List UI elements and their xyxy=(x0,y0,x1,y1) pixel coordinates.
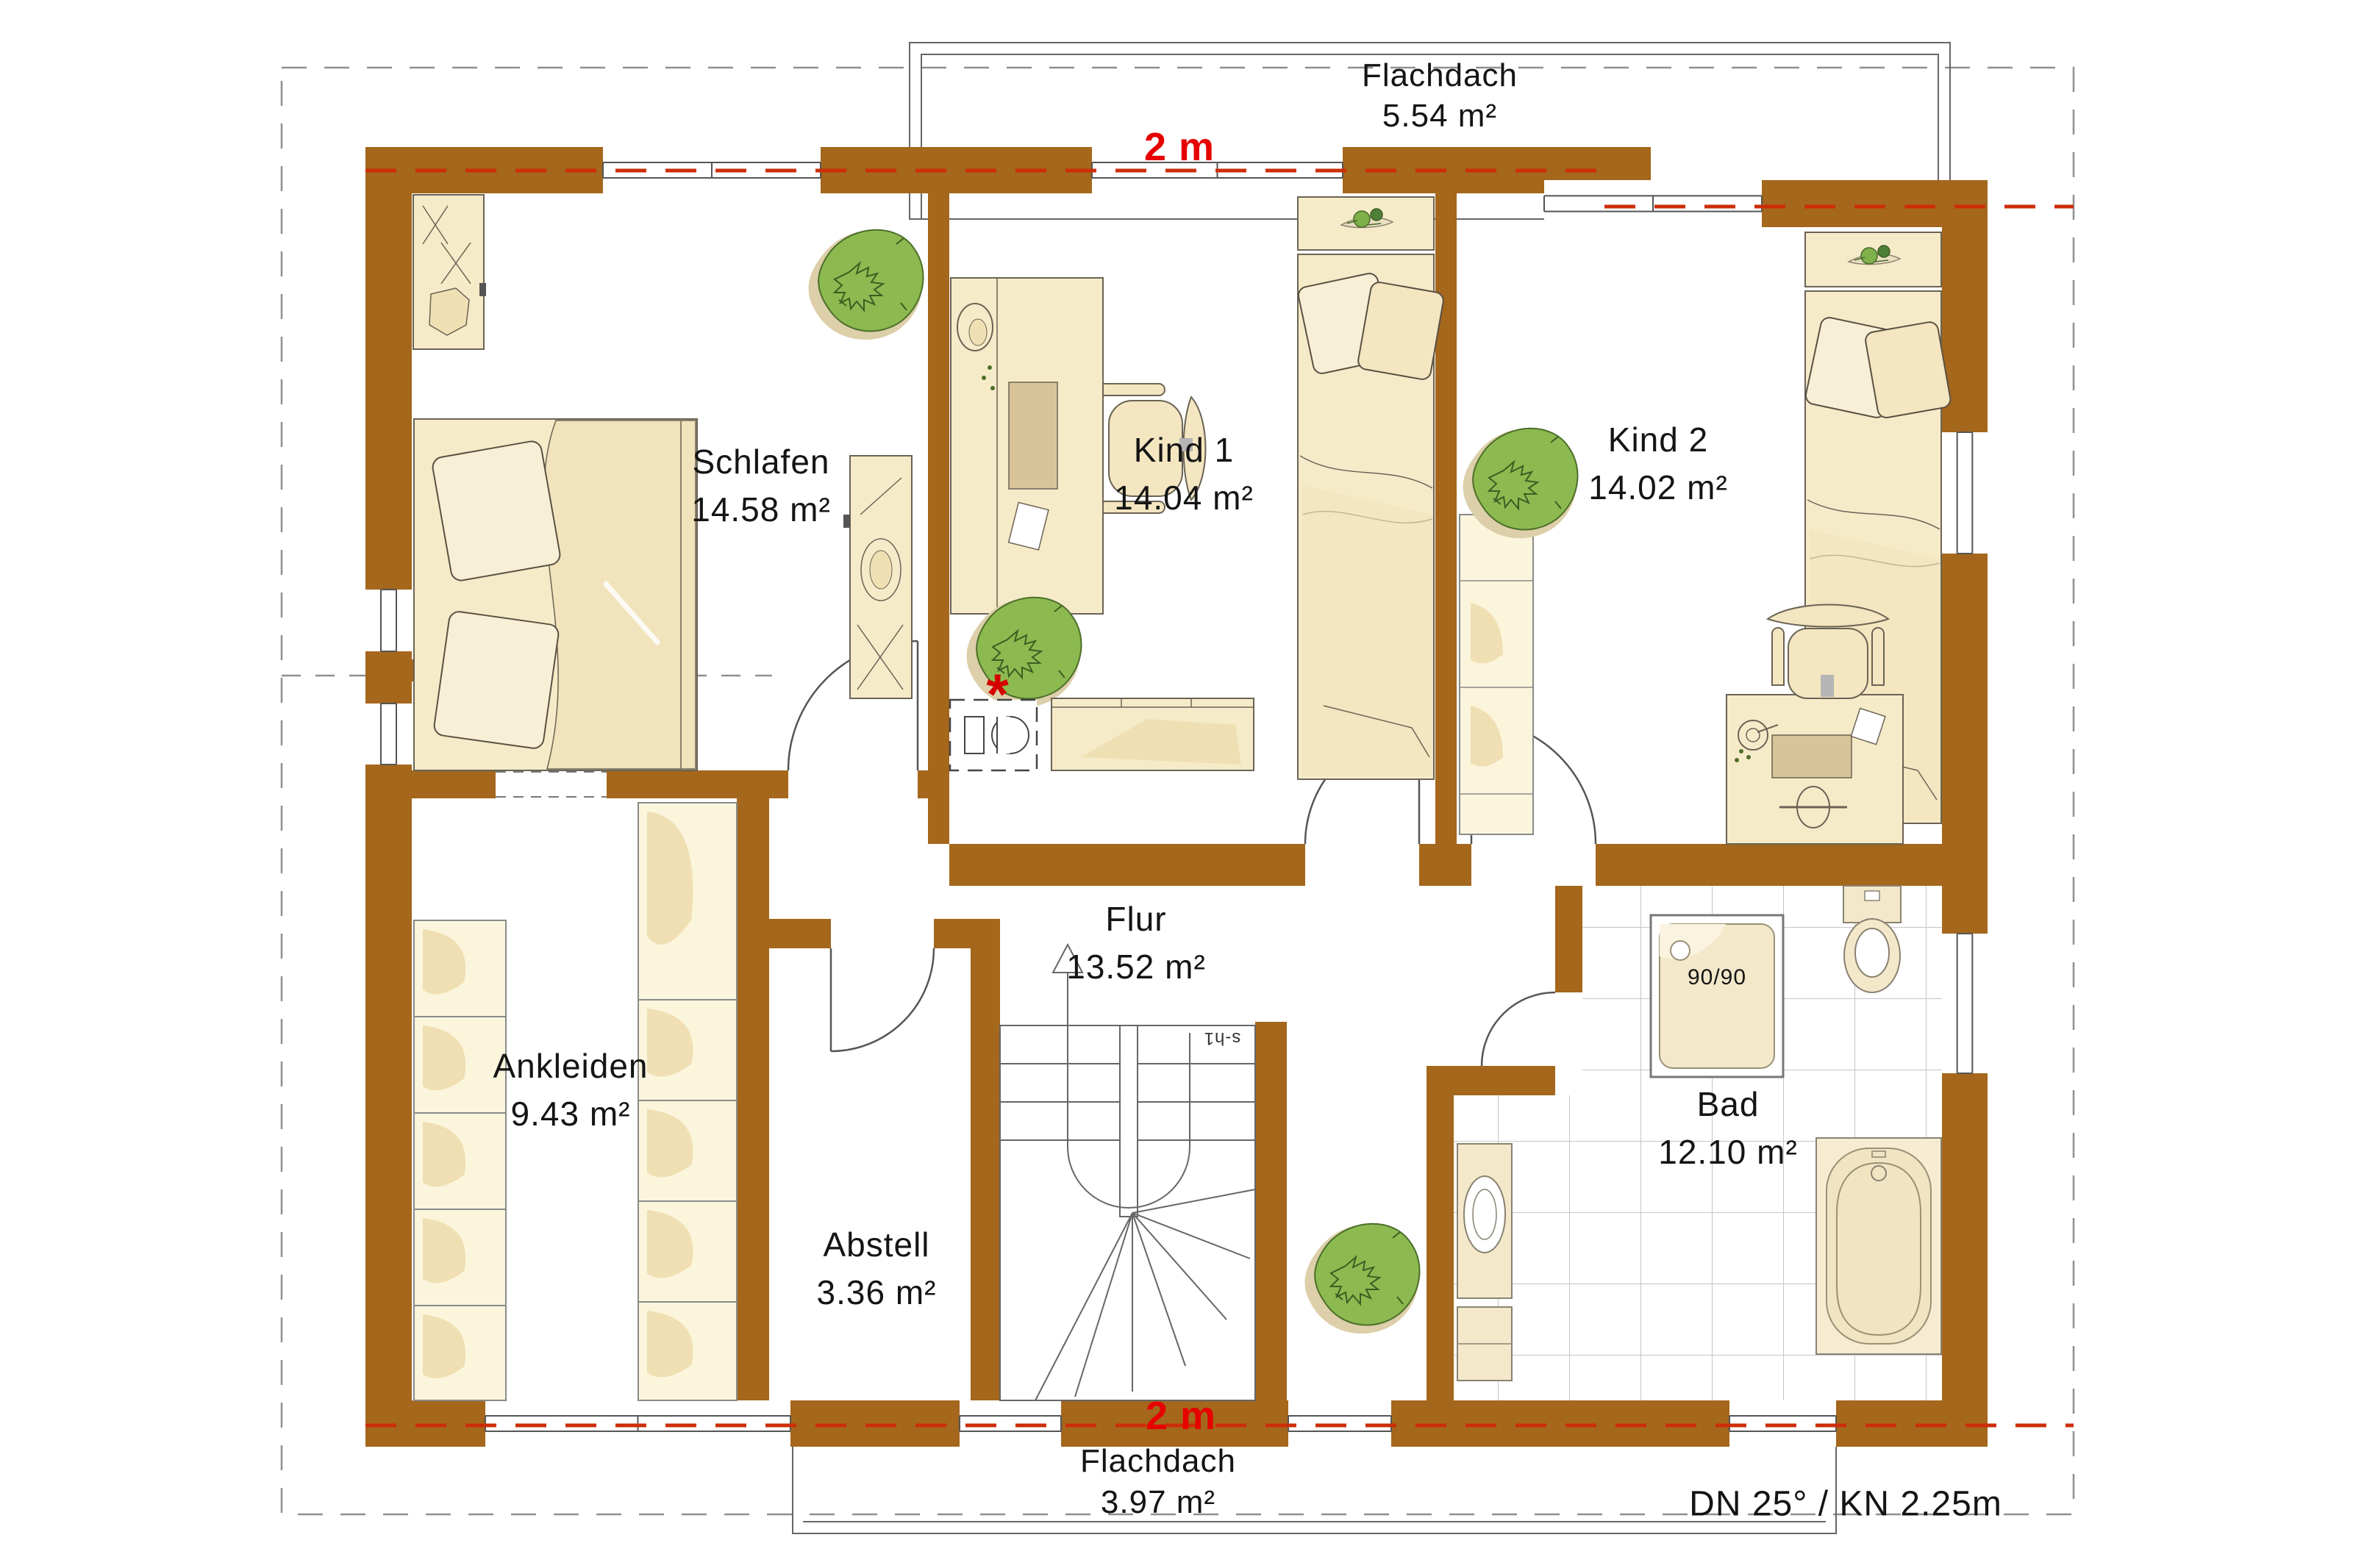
door-abstell xyxy=(831,948,934,1051)
label-flachdach-top-area: 5.54 m² xyxy=(1382,98,1497,135)
staircase xyxy=(1000,945,1255,1400)
desk-kind2 xyxy=(1727,695,1903,844)
label-schlafen: Schlafen xyxy=(692,442,829,482)
label-abstell: Abstell xyxy=(823,1225,929,1264)
label-roof-note: DN 25° / KN 2.25m xyxy=(1689,1484,2002,1525)
wardrobe-kind2 xyxy=(1460,515,1533,834)
label-stair-code: s-h1 xyxy=(1204,1028,1241,1048)
double-bed xyxy=(414,419,697,770)
plant-schlafen xyxy=(809,230,924,340)
closet xyxy=(413,195,486,349)
label-asterisk: * xyxy=(986,661,1009,728)
label-kind2: Kind 2 xyxy=(1608,420,1708,459)
label-shower-size: 90/90 xyxy=(1688,965,1746,990)
label-2m-bottom: 2 m xyxy=(1146,1393,1216,1439)
sideboard xyxy=(1051,698,1254,770)
schlafen-furniture xyxy=(413,195,924,770)
label-ankleiden: Ankleiden xyxy=(493,1046,648,1086)
label-abstell-area: 3.36 m² xyxy=(817,1272,937,1312)
label-ankleiden-area: 9.43 m² xyxy=(511,1094,631,1134)
label-2m-top: 2 m xyxy=(1144,124,1215,170)
door-bad xyxy=(1482,992,1555,1066)
toilet xyxy=(1843,886,1901,992)
label-flachdach-top: Flachdach xyxy=(1362,57,1518,94)
label-kind2-area: 14.02 m² xyxy=(1588,468,1728,507)
dresser xyxy=(843,456,912,698)
label-schlafen-area: 14.58 m² xyxy=(691,490,831,529)
label-bad: Bad xyxy=(1697,1084,1760,1124)
label-flur-area: 13.52 m² xyxy=(1066,947,1206,987)
kind2-furniture xyxy=(1460,232,1952,844)
washbasin-vanity xyxy=(1457,1144,1512,1381)
bathtub xyxy=(1816,1138,1941,1354)
label-bad-area: 12.10 m² xyxy=(1658,1132,1798,1172)
floor-plan: Flachdach 5.54 m² Schlafen 14.58 m² Kind… xyxy=(0,0,2353,1568)
plant-flur xyxy=(1305,1224,1420,1333)
label-flachdach-bottom-area: 3.97 m² xyxy=(1101,1484,1215,1521)
label-kind1: Kind 1 xyxy=(1134,430,1234,470)
shower xyxy=(1651,915,1783,1077)
label-flachdach-bottom: Flachdach xyxy=(1080,1443,1236,1480)
label-kind1-area: 14.04 m² xyxy=(1114,478,1254,518)
desk-kind1 xyxy=(951,278,1103,614)
bed-kind1 xyxy=(1297,197,1445,779)
flat-roof-bottom-outline xyxy=(793,1433,1836,1533)
label-flur: Flur xyxy=(1105,899,1166,939)
floor-plan-drawing xyxy=(0,0,2353,1568)
plant-kind2 xyxy=(1463,429,1578,538)
